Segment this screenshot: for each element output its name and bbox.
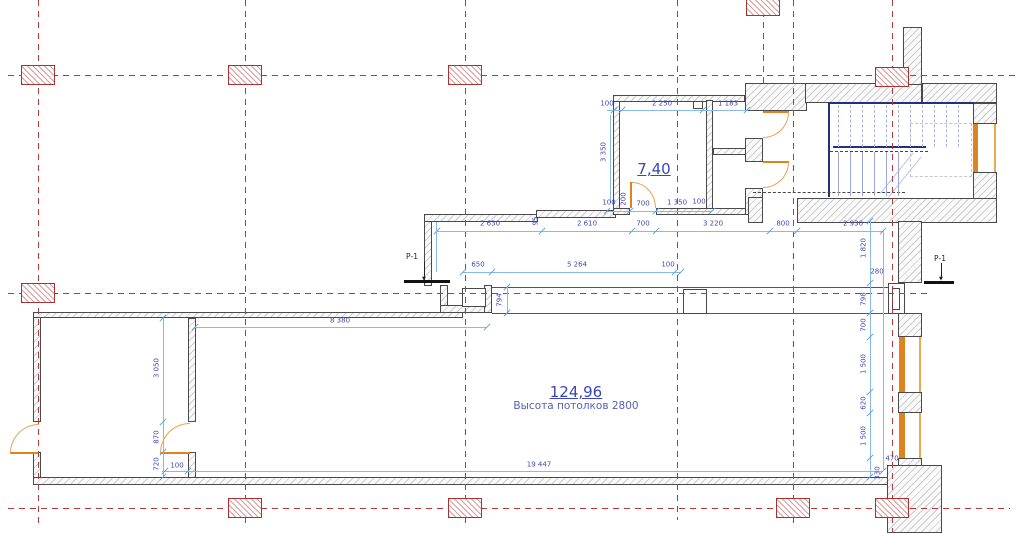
room-labels-layer: 7,40 124,96 Высота потолков 2800 [0,0,1024,533]
room-main-ceiling-note: Высота потолков 2800 [513,400,638,412]
room-small-area-value: 7,40 [637,161,670,177]
room-small-label: 7,40 [637,161,670,177]
floor-plan-canvas: 1002 2501 1833 3501002007001 3501002 630… [0,0,1024,533]
room-main-area-value: 124,96 [513,384,638,400]
room-main-label: 124,96 Высота потолков 2800 [513,384,638,412]
